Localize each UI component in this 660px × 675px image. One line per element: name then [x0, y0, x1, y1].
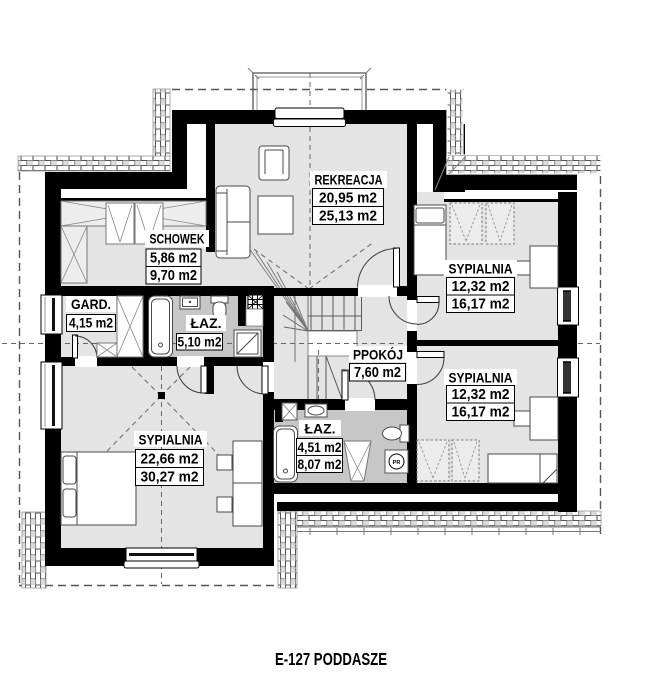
svg-text:20,95 m2: 20,95 m2 — [319, 190, 377, 207]
svg-text:PR: PR — [393, 460, 401, 466]
svg-text:7,60 m2: 7,60 m2 — [354, 364, 401, 381]
svg-text:5,10 m2: 5,10 m2 — [178, 334, 222, 350]
svg-text:SCHOWEK: SCHOWEK — [150, 231, 205, 247]
svg-text:4,15 m2: 4,15 m2 — [69, 315, 113, 331]
svg-text:PPOKÓJ: PPOKÓJ — [353, 346, 403, 363]
svg-text:16,17 m2: 16,17 m2 — [452, 404, 510, 421]
svg-text:SYPIALNIA: SYPIALNIA — [449, 261, 513, 277]
svg-text:12,32 m2: 12,32 m2 — [452, 386, 510, 403]
svg-text:12,32 m2: 12,32 m2 — [452, 278, 510, 295]
svg-text:25,13 m2: 25,13 m2 — [319, 208, 377, 225]
svg-text:5,86 m2: 5,86 m2 — [150, 250, 197, 267]
svg-text:SYPIALNIA: SYPIALNIA — [449, 370, 513, 386]
svg-text:16,17 m2: 16,17 m2 — [452, 296, 510, 313]
svg-text:30,27 m2: 30,27 m2 — [141, 469, 199, 486]
svg-text:22,66 m2: 22,66 m2 — [141, 451, 199, 468]
svg-text:REKREACJA: REKREACJA — [315, 172, 383, 188]
svg-text:8,07 m2: 8,07 m2 — [298, 456, 342, 472]
svg-text:ŁAZ.: ŁAZ. — [191, 315, 222, 331]
svg-text:ŁAZ.: ŁAZ. — [305, 421, 336, 437]
svg-text:4,51 m2: 4,51 m2 — [298, 439, 342, 455]
svg-text:GARD.: GARD. — [71, 296, 111, 312]
svg-text:E-127 PODDASZE: E-127 PODDASZE — [275, 649, 387, 669]
svg-text:9,70 m2: 9,70 m2 — [150, 267, 197, 284]
svg-text:SYPIALNIA: SYPIALNIA — [139, 432, 203, 448]
